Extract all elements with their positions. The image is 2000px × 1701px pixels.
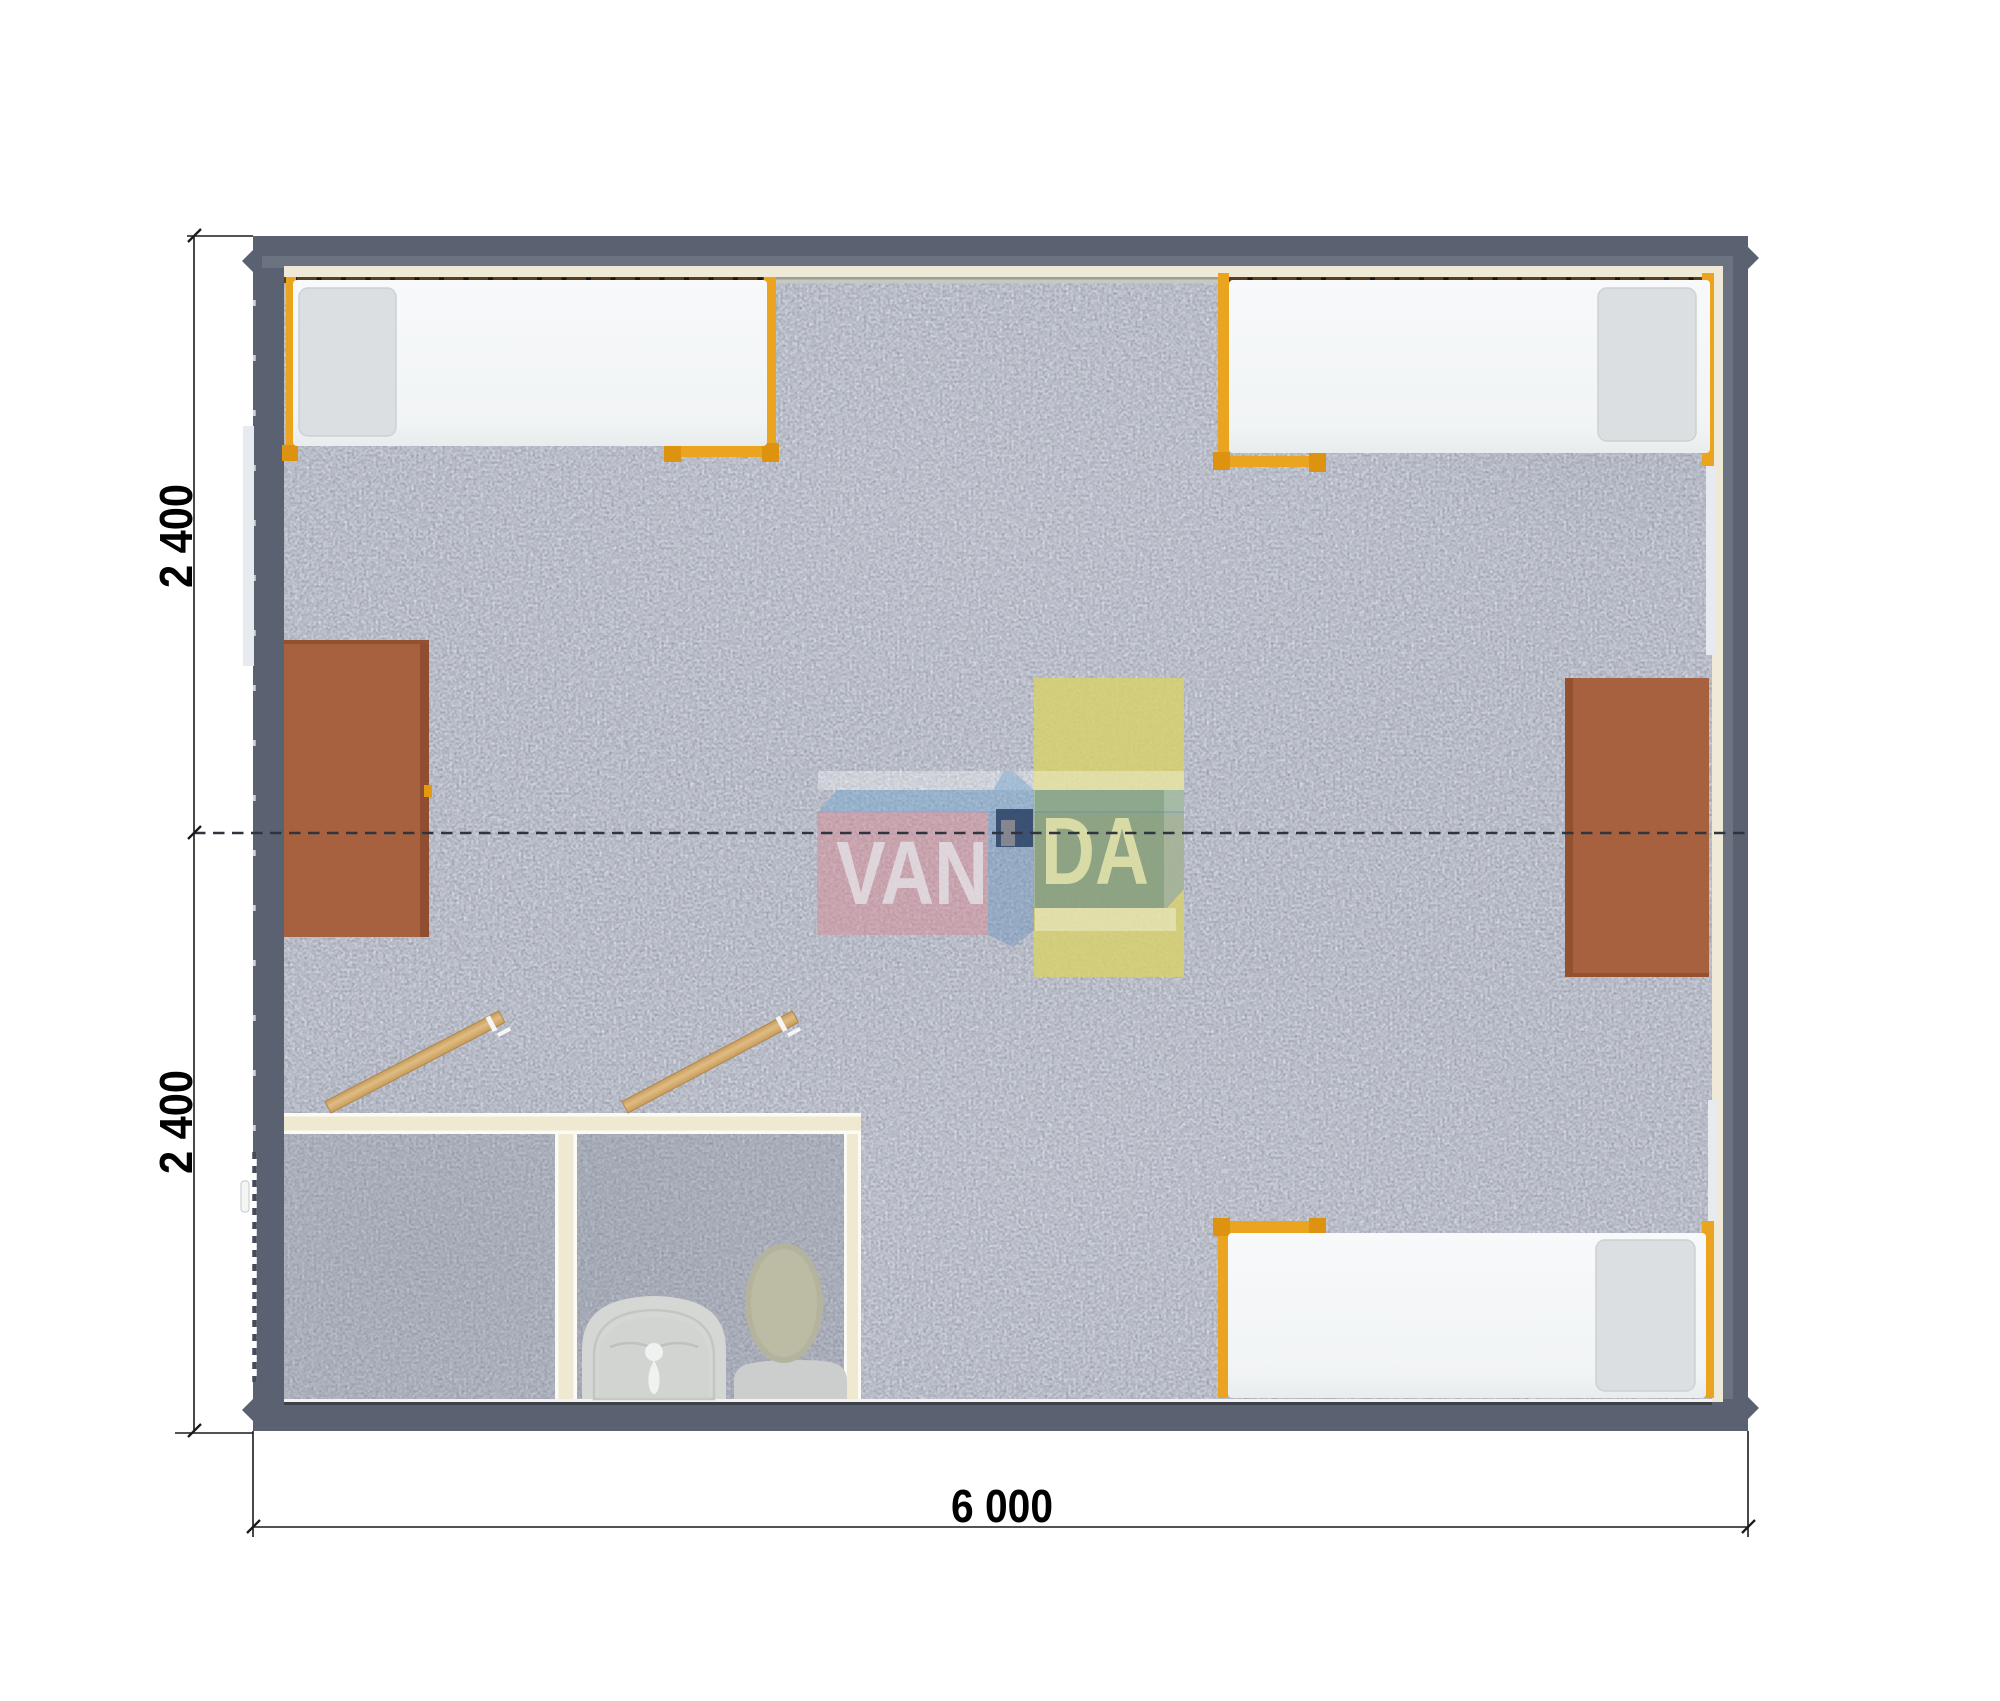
svg-text:DA: DA: [1041, 798, 1149, 905]
svg-text:2 400: 2 400: [150, 484, 202, 588]
svg-text:VAN: VAN: [836, 824, 988, 924]
svg-text:2 400: 2 400: [150, 1070, 202, 1174]
svg-text:6 000: 6 000: [951, 1480, 1053, 1532]
